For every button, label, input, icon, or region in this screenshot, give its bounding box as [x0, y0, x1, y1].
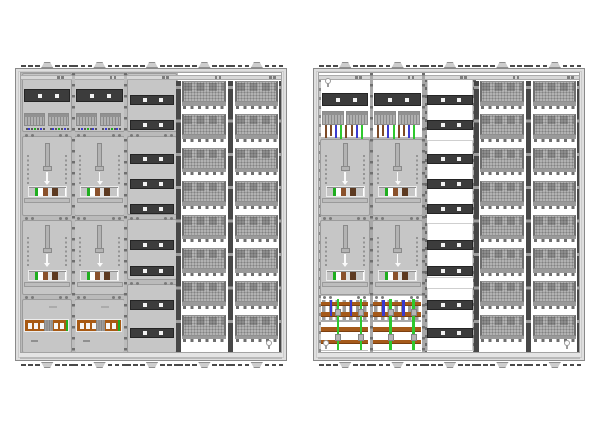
terminal-block-row [76, 113, 97, 126]
bottom-mounting-dash [570, 364, 575, 367]
lifting-lug [547, 62, 563, 68]
strip-marker [143, 269, 147, 273]
terminal-wire [330, 125, 332, 136]
panel-rib [27, 237, 29, 267]
top-mounting-dash [88, 65, 93, 68]
lifting-lug [39, 62, 55, 68]
grid-teeth [183, 172, 224, 175]
busbar-cover-strip [322, 93, 368, 106]
sls-main-switch [24, 319, 69, 332]
grid-device-band [237, 116, 276, 124]
sls-contact [86, 323, 90, 329]
bottom-mounting-dash [126, 364, 131, 367]
terminal-wire-dot [92, 128, 94, 130]
bottom-mounting-dash [238, 364, 243, 367]
seam-screw [130, 282, 133, 285]
strip-marker [353, 98, 357, 102]
grid-teeth [481, 273, 522, 276]
terminal-block-row [374, 111, 396, 125]
bottom-mounting-dash [510, 364, 515, 367]
top-mounting-dash [55, 65, 60, 68]
strip-marker [457, 269, 461, 273]
terminal-wire-dot [90, 128, 92, 130]
top-mounting-dash [231, 65, 236, 68]
terminal-wire-dot [119, 128, 121, 130]
mounting-foot [337, 362, 353, 368]
grid-teeth [534, 172, 575, 175]
strip-marker [441, 182, 445, 186]
cover-panel [127, 284, 177, 353]
strip-marker [441, 331, 445, 335]
meter-block-segment [58, 188, 65, 197]
sls-contact [80, 323, 84, 329]
strip-marker [457, 331, 461, 335]
grid-teeth [481, 206, 522, 209]
meter-arrow-icon [342, 263, 348, 267]
rail-panel [427, 140, 473, 213]
meter-arrow-icon [97, 181, 103, 185]
panel-rib [65, 155, 67, 185]
grid-device-band [184, 183, 223, 191]
strip-marker [90, 94, 94, 98]
terminal-wire-dot [26, 128, 28, 130]
strip-marker [441, 157, 445, 161]
seam-screw [136, 217, 139, 220]
top-mounting-dash [563, 65, 568, 68]
grid-device-band [184, 317, 223, 325]
top-mounting-dash [74, 65, 79, 68]
meter-hanger-rod [343, 143, 348, 168]
din-rail [427, 240, 473, 250]
meter-arrow-icon [97, 263, 103, 267]
bottom-mounting-dash [379, 364, 384, 367]
wire-clamp [335, 334, 341, 341]
top-mounting-dash [178, 65, 183, 68]
trim-marker [571, 76, 574, 79]
din-rail [427, 95, 473, 105]
terminal-block-row [346, 111, 368, 125]
mounting-foot [494, 362, 510, 368]
top-mounting-dash [379, 65, 384, 68]
grid-teeth [534, 106, 575, 109]
bottom-mounting-dash [490, 364, 495, 367]
bottom-mounting-dash [353, 364, 358, 367]
terminal-wire [345, 125, 347, 138]
terminal-wire-dot [114, 128, 116, 130]
cabinet-body [20, 72, 282, 353]
grid-device-band [535, 83, 574, 91]
grid-device-band [184, 250, 223, 258]
bottom-mounting-dash [458, 364, 463, 367]
sls-contact [28, 323, 32, 329]
strip-marker [388, 98, 392, 102]
bottom-mounting-dash [265, 364, 270, 367]
strip-marker [457, 98, 461, 102]
meter-hanger-rod [97, 225, 102, 250]
bottom-mounting-dash [88, 364, 93, 367]
grid-teeth [236, 306, 277, 309]
top-mounting-dash [529, 65, 534, 68]
sls-mid-block [96, 320, 105, 331]
panel-rib [325, 155, 327, 185]
top-mounting-dash [108, 65, 113, 68]
mounting-foot [442, 362, 458, 368]
grid-device-band [482, 283, 521, 291]
meter-cabinet-left-covered [15, 68, 287, 361]
top-mounting-dash [372, 65, 377, 68]
cabinet-body [318, 72, 580, 353]
strip-marker [107, 94, 111, 98]
bottom-mounting-dash [62, 364, 67, 367]
lifting-lug [196, 62, 212, 68]
grid-teeth [534, 306, 575, 309]
bottom-mounting-dash [133, 364, 138, 367]
top-mounting-dash [570, 65, 575, 68]
panel-rib [363, 155, 365, 185]
bottom-mounting-dash [483, 364, 488, 367]
panel-rib [325, 237, 327, 267]
sls-green-stripe [66, 320, 68, 331]
grid-device-band [535, 217, 574, 225]
top-mounting-dash [326, 65, 331, 68]
terminal-block-row [398, 111, 420, 125]
trim-marker [513, 76, 516, 79]
meter-drop-line [344, 172, 346, 181]
meter-block-segment [58, 272, 65, 281]
wire-clamp [411, 309, 417, 316]
seam-screw [130, 217, 133, 220]
terminal-wire-dot [31, 128, 33, 130]
vertical-rail [228, 81, 233, 353]
strip-marker [441, 303, 445, 307]
bottom-mounting-dash [517, 364, 522, 367]
terminal-block-row [48, 113, 69, 126]
grid-device-band [482, 116, 521, 124]
bottom-mounting-dash [192, 364, 197, 367]
sls-label-dash [49, 306, 57, 308]
bottom-mounting-dash [28, 364, 33, 367]
bottom-mounting-dash [108, 364, 113, 367]
bottom-mounting-dash [424, 364, 429, 367]
strip-marker [143, 182, 147, 186]
seam-screw [381, 296, 384, 299]
top-mounting-dash [386, 65, 391, 68]
grid-teeth [481, 172, 522, 175]
meter-block-segment [356, 272, 363, 281]
din-rail [427, 179, 473, 189]
top-mounting-dash [424, 65, 429, 68]
top-mounting-dash [133, 65, 138, 68]
busbar-cover-strip [374, 93, 420, 106]
bottom-mounting-dash [178, 364, 183, 367]
bottom-mounting-dash [577, 364, 582, 367]
seam-screw [31, 217, 34, 220]
panel-rib [363, 237, 365, 267]
grid-device-band [482, 217, 521, 225]
meter-hanger-cap [43, 166, 52, 171]
meter-hanger-rod [395, 225, 400, 250]
meter-base-plate [24, 282, 70, 287]
grid-device-band [482, 250, 521, 258]
meter-drop-line [99, 172, 101, 181]
grid-device-band [482, 183, 521, 191]
panel-rib [118, 237, 120, 267]
lifting-lug [92, 62, 108, 68]
bottom-mounting-dash [465, 364, 470, 367]
terminal-wire [403, 125, 405, 136]
strip-marker [143, 207, 147, 211]
mounting-foot [144, 362, 160, 368]
top-mounting-dash [245, 65, 250, 68]
top-trim-strip [21, 75, 282, 80]
terminal-wire-dot [116, 128, 118, 130]
vertical-rail [577, 81, 580, 353]
top-mounting-dash [465, 65, 470, 68]
terminal-wire [387, 125, 389, 138]
grid-teeth [236, 139, 277, 142]
trim-marker [166, 76, 169, 79]
seam-screw [31, 296, 34, 299]
sls-main-switch [76, 319, 121, 332]
top-mounting-dash [212, 65, 217, 68]
seam-screw [375, 296, 378, 299]
top-mounting-dash [458, 65, 463, 68]
bottom-mounting-dash [21, 364, 26, 367]
strip-marker [159, 331, 163, 335]
vertical-rail [279, 81, 282, 353]
grid-teeth [481, 306, 522, 309]
terminal-wire-dot [64, 128, 66, 130]
lifting-lug [390, 62, 406, 68]
top-mounting-dash [536, 65, 541, 68]
top-mounting-dash [406, 65, 411, 68]
top-mounting-dash [28, 65, 33, 68]
grid-device-band [184, 83, 223, 91]
bottom-mounting-dash [115, 364, 120, 367]
grid-teeth [236, 239, 277, 242]
seam-screw [25, 134, 28, 137]
top-mounting-dash [238, 65, 243, 68]
terminal-wire-dot [87, 128, 89, 130]
strip-marker [405, 98, 409, 102]
panel-rib [65, 237, 67, 267]
top-mounting-dash [577, 65, 582, 68]
trim-marker [162, 76, 165, 79]
meter-drop-line [397, 172, 399, 181]
lifting-lug [442, 62, 458, 68]
top-mounting-dash [319, 65, 324, 68]
meter-hanger-rod [45, 143, 50, 168]
trim-marker [219, 76, 222, 79]
sls-contact [34, 323, 38, 329]
bottom-mounting-dash [372, 364, 377, 367]
strip-marker [441, 123, 445, 127]
terminal-wire-dot [111, 128, 113, 130]
meter-hanger-cap [341, 248, 350, 253]
grid-teeth [183, 206, 224, 209]
top-mounting-dash [160, 65, 165, 68]
top-mounting-dash [35, 65, 40, 68]
bottom-mounting-dash [476, 364, 481, 367]
rail-panel [427, 288, 473, 351]
sls-contact [54, 323, 58, 329]
terminal-wire-dot [105, 128, 107, 130]
terminal-wire [340, 125, 342, 139]
bottom-mounting-dash [536, 364, 541, 367]
trim-marker [355, 76, 358, 79]
panel-rib [377, 155, 379, 185]
grid-teeth [534, 206, 575, 209]
grid-device-band [482, 83, 521, 91]
sls-contact [106, 323, 110, 329]
strip-marker [159, 98, 163, 102]
top-mounting-dash [517, 65, 522, 68]
grid-device-band [535, 183, 574, 191]
panel-rib [79, 237, 81, 267]
din-rail-cover-strip [130, 120, 174, 130]
top-mounting-dash [490, 65, 495, 68]
busbar-base-line [373, 350, 420, 351]
terminal-wire-dot [52, 128, 54, 130]
strip-marker [159, 207, 163, 211]
meter-block-segment [408, 188, 415, 197]
bottom-mounting-dash [160, 364, 165, 367]
pe-wire [389, 299, 391, 351]
lifting-lug [337, 62, 353, 68]
grid-teeth [481, 239, 522, 242]
seam-screw [112, 134, 115, 137]
top-mounting-dash [279, 65, 284, 68]
din-rail-cover-strip [130, 266, 174, 276]
meter-block-segment [356, 188, 363, 197]
grid-teeth [534, 139, 575, 142]
strip-marker [55, 94, 59, 98]
meter-hanger-cap [393, 248, 402, 253]
n-wire [350, 300, 352, 316]
terminal-wire [413, 125, 415, 139]
terminal-wire-dot [34, 128, 36, 130]
bottom-mounting-dash [326, 364, 331, 367]
column-divider [370, 73, 373, 353]
trim-marker [269, 76, 272, 79]
meter-arrow-icon [342, 181, 348, 185]
terminal-wire-dot [58, 128, 60, 130]
strip-marker [457, 157, 461, 161]
mounting-foot [249, 362, 265, 368]
terminal-wire [351, 125, 353, 136]
din-rail [427, 266, 473, 276]
bottom-mounting-dash [529, 364, 534, 367]
seam-screw [329, 217, 332, 220]
meter-hanger-rod [45, 225, 50, 250]
terminal-wire [382, 125, 384, 136]
strip-marker [457, 182, 461, 186]
bottom-mounting-dash [185, 364, 190, 367]
terminal-wire [335, 125, 337, 138]
panel-rib [416, 155, 418, 185]
grid-teeth [236, 106, 277, 109]
seam-screw [323, 217, 326, 220]
wire-clamp [358, 309, 364, 316]
din-rail-cover-strip [130, 240, 174, 250]
strip-marker [441, 243, 445, 247]
trim-marker [57, 76, 60, 79]
keyhole-stem [268, 345, 271, 349]
seam-screw [118, 217, 121, 220]
grid-teeth [534, 239, 575, 242]
top-mounting-dash [185, 65, 190, 68]
keyhole-icon [564, 340, 571, 350]
trim-marker [460, 76, 463, 79]
meter-hanger-rod [343, 225, 348, 250]
grid-device-band [237, 83, 276, 91]
meter-drop-line [344, 254, 346, 263]
trim-marker [567, 76, 570, 79]
top-mounting-dash [353, 65, 358, 68]
terminal-wire [356, 125, 358, 138]
seam-screw [416, 296, 419, 299]
trim-marker [273, 76, 276, 79]
wire-clamp [411, 334, 417, 341]
seam-screw [363, 296, 366, 299]
seam-screw [416, 217, 419, 220]
lifting-lug [144, 62, 160, 68]
sls-mid-block [44, 320, 53, 331]
top-mounting-dash [333, 65, 338, 68]
bottom-mounting-dash [406, 364, 411, 367]
trim-marker [215, 76, 218, 79]
grid-device-band [237, 283, 276, 291]
meter-arrow-icon [395, 181, 401, 185]
top-mounting-dash [476, 65, 481, 68]
bottom-mounting-dash [431, 364, 436, 367]
grid-device-band [184, 217, 223, 225]
seam-screw [25, 217, 28, 220]
top-mounting-dash [21, 65, 26, 68]
seam-screw [25, 296, 28, 299]
trim-marker [412, 76, 415, 79]
keyhole-stem [325, 345, 328, 349]
terminal-wire-dot [84, 128, 86, 130]
bottom-mounting-dash [279, 364, 284, 367]
panel-rib [118, 155, 120, 185]
meter-drop-line [397, 254, 399, 263]
terminal-wire [398, 125, 400, 138]
frame-bottom-line [318, 357, 580, 359]
sls-contact [60, 323, 64, 329]
top-mounting-dash [192, 65, 197, 68]
n-wire [330, 300, 332, 316]
din-rail [427, 300, 473, 310]
strip-marker [143, 331, 147, 335]
strip-marker [441, 269, 445, 273]
grid-teeth [481, 139, 522, 142]
drawing-canvas [0, 0, 600, 424]
terminal-wire-dot [67, 128, 69, 130]
sls-green-stripe [118, 320, 120, 331]
terminal-wire-dot [95, 128, 97, 130]
din-rail [427, 120, 473, 130]
strip-marker [159, 303, 163, 307]
terminal-wire-dot [78, 128, 80, 130]
seam-screw [410, 296, 413, 299]
din-rail-cover-strip [130, 95, 174, 105]
din-rail [427, 154, 473, 164]
trim-marker [114, 76, 117, 79]
busbar-cover-strip [76, 89, 122, 102]
bottom-mounting-dash [386, 364, 391, 367]
panel-rib [377, 237, 379, 267]
